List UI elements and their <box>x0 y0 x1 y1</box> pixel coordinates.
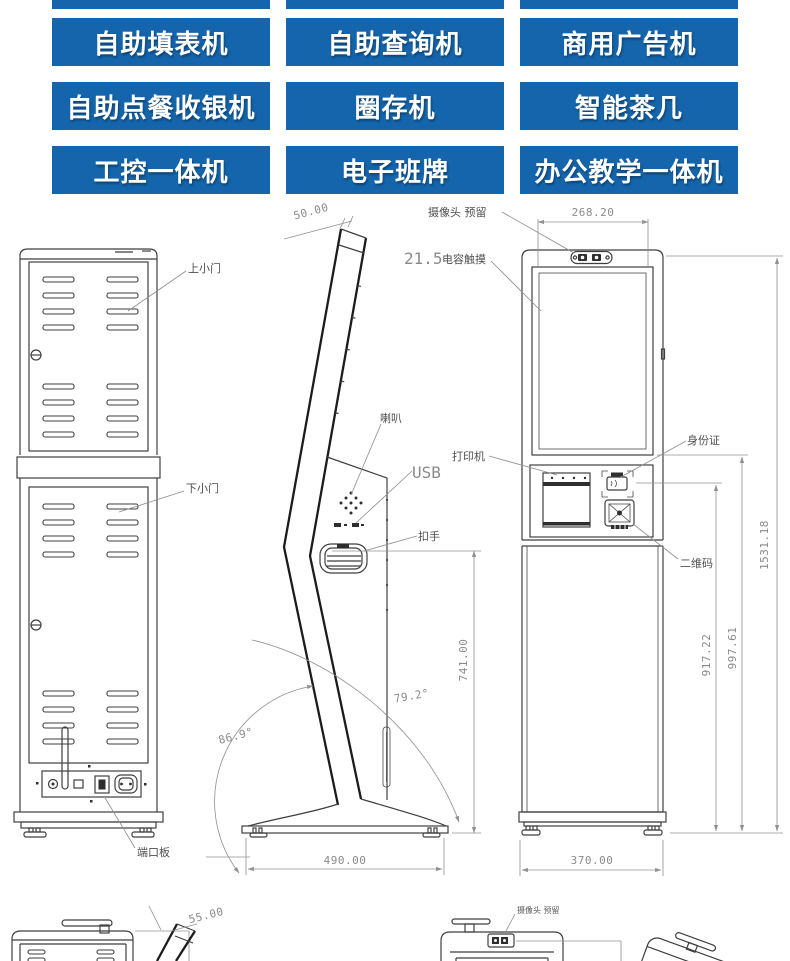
dim-total-height-text: 1531.18 <box>758 520 771 570</box>
vent-slots-upper <box>43 277 138 437</box>
upper-door-lock-icon <box>31 350 41 360</box>
tilt-angle-text: 86.9° <box>217 725 255 747</box>
camera-module <box>571 252 612 264</box>
port-panel-label: 端口板 <box>137 845 170 859</box>
touch-size-text: 21.5 <box>404 249 443 268</box>
side-base <box>242 799 448 837</box>
dim-base-depth-text: 490.00 <box>324 854 367 867</box>
dim-top-depth-text: 50.00 <box>292 201 330 223</box>
dim-base-depth: 490.00 <box>246 838 444 875</box>
partial-rear-view <box>12 920 189 961</box>
vent-slots-lower <box>43 504 138 744</box>
dim-head-width-text: 268.20 <box>572 206 615 219</box>
touch-label: 电容触摸 <box>442 252 486 266</box>
dim-side-depth-text: 55.00 <box>187 905 225 926</box>
rear-view: 上小门 下小门 端口板 <box>14 249 221 859</box>
camera-label: 摄像头 预留 <box>428 205 487 219</box>
front-view: 268.20 1531.18 997.61 917.22 370.00 摄 <box>404 205 783 876</box>
dim-qr-height-text: 917.22 <box>700 634 713 677</box>
bottom-row-drawings: 55.00 摄像头 预留 <box>12 905 790 961</box>
side-view: 50.00 86.9° 79.2° 741.00 490.00 喇叭 USB 扣… <box>206 201 481 875</box>
device-panel <box>530 465 653 537</box>
qr-scanner-label: 二维码 <box>680 557 713 570</box>
dim-top-depth: 50.00 <box>284 201 353 239</box>
upper-door-label: 上小门 <box>188 261 221 275</box>
dim-base-width: 370.00 <box>520 840 663 876</box>
touch-screen <box>532 267 653 455</box>
antenna <box>62 727 68 789</box>
rear-base <box>14 812 163 837</box>
dim-qr-height: 917.22 <box>636 483 722 831</box>
id-reader-label: 身份证 <box>687 433 720 447</box>
printer-label: 打印机 <box>452 449 485 463</box>
partial-side-view: 55.00 <box>149 905 225 961</box>
technical-drawing: 上小门 下小门 端口板 <box>0 0 790 961</box>
lower-door-label: 下小门 <box>186 481 219 495</box>
id-card-reader <box>602 471 633 497</box>
dim-id-height-text: 997.61 <box>726 627 739 670</box>
port-panel <box>36 765 147 803</box>
camera-label-small: 摄像头 预留 <box>517 905 560 915</box>
printer-slot <box>543 473 590 527</box>
dim-base-width-text: 370.00 <box>571 854 614 867</box>
handle-label: 扣手 <box>418 529 440 543</box>
usb-ports <box>334 523 364 527</box>
dim-total-height: 1531.18 <box>666 256 783 833</box>
front-cabinet <box>519 546 666 835</box>
lean-angle-text: 79.2° <box>393 687 430 706</box>
dim-screen-height-text: 741.00 <box>457 639 470 682</box>
speaker-label: 喇叭 <box>380 411 402 425</box>
partial-angled-view <box>610 924 790 961</box>
handle <box>320 544 367 573</box>
usb-label: USB <box>412 463 441 482</box>
qr-scanner <box>605 500 634 529</box>
partial-front-view: 摄像头 预留 <box>441 905 621 961</box>
lower-door-lock-icon <box>31 620 41 630</box>
